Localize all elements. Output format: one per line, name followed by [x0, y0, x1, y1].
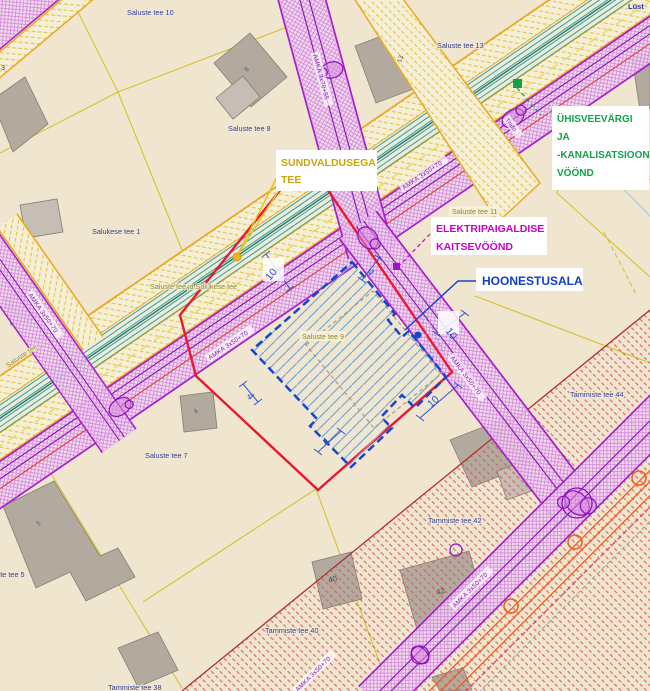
annotation-uhisveevargi-voond: ÜHISVEEVÄRGI JA -KANALISATSIOONI VÖÖND	[552, 106, 650, 190]
parcel-label-saluste-tee-10: Saluste tee 10	[127, 8, 174, 17]
svg-text:ÜHISVEEVÄRGI: ÜHISVEEVÄRGI	[557, 112, 633, 125]
marker-yellow-dot	[233, 253, 241, 261]
parcel-label-saluste-tee-9: Saluste tee 9	[302, 332, 344, 341]
annotation-hoonestusala: HOONESTUSALA	[476, 268, 583, 291]
parcel-label-saluste-tee-5: Saluste tee 5	[0, 570, 25, 579]
svg-text:SUNDVALDUSEGA: SUNDVALDUSEGA	[281, 157, 376, 169]
svg-text:ELEKTRIPAIGALDISE: ELEKTRIPAIGALDISE	[436, 223, 544, 235]
annotation-sundvaldusega-tee: SUNDVALDUSEGA TEE	[276, 150, 377, 191]
parcel-label-saluste-tee-11: Saluste tee 11	[452, 207, 497, 216]
marker-blue-dot	[415, 332, 422, 339]
parcel-label-salukese-tee-1: Salukese tee 1	[92, 227, 140, 236]
svg-text:-KANALISATSIOONI: -KANALISATSIOONI	[557, 150, 650, 161]
parcel-label-tammiste-tee-40: Tammiste tee 40	[265, 626, 319, 635]
parcel-label-tammiste-tee-44: Tammiste tee 44	[570, 390, 624, 399]
road-label-combined: Saluste tee ja Salukese tee	[150, 282, 237, 291]
marker-green-square	[513, 79, 522, 88]
parcel-label-saluste-tee-8: Saluste tee 8	[228, 124, 271, 133]
parcel-label-3: 3	[1, 63, 5, 72]
svg-text:VÖÖND: VÖÖND	[557, 166, 594, 179]
planning-map-canvas[interactable]: 10 4 10 10 4 4 AMKA 3x50+70 AMKA 3x50+70…	[0, 0, 650, 691]
svg-text:KAITSEVÖÖND: KAITSEVÖÖND	[436, 240, 513, 253]
marker-purple-square	[393, 263, 400, 270]
map-viewport: 10 4 10 10 4 4 AMKA 3x50+70 AMKA 3x50+70…	[0, 0, 650, 691]
svg-text:HOONESTUSALA: HOONESTUSALA	[482, 274, 583, 288]
svg-text:JA: JA	[557, 132, 570, 143]
parcel-label-saluste-tee-7: Saluste tee 7	[145, 451, 188, 460]
svg-text:TEE: TEE	[281, 174, 301, 186]
parcel-label-saluste-tee-13: Saluste tee 13	[437, 41, 484, 50]
parcel-label-tammiste-tee-38: Tammiste tee 38	[108, 683, 162, 691]
annotation-elektripaigaldise-kaitsevoond: ELEKTRIPAIGALDISE KAITSEVÖÖND	[431, 217, 547, 255]
parcel-label-tammiste-tee-42: Tammiste tee 42	[428, 516, 482, 525]
parcel-label-lust: Lüst	[628, 2, 644, 11]
